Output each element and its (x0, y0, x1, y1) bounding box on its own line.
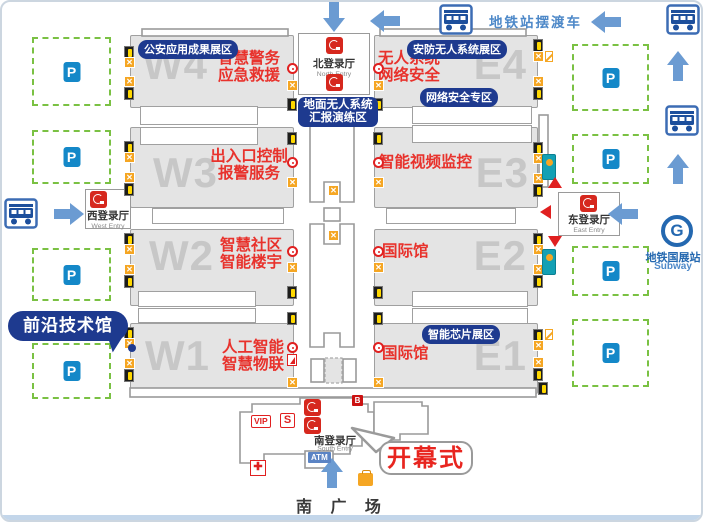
exit-icon (287, 132, 297, 145)
hall-topic-e2: 国际馆 (382, 244, 429, 261)
escalator-icon (304, 399, 321, 416)
north-entry-label: 北登录厅 (299, 58, 369, 70)
stairs-icon (287, 377, 298, 388)
stairs-icon (328, 230, 339, 241)
subway-shuttle-label: 地铁站摆渡车 (489, 11, 582, 31)
exit-icon (373, 132, 383, 145)
registration-icon (326, 37, 343, 54)
exit-icon (538, 382, 548, 395)
expo-floor-map: W4 W3 W2 W1 E4 E3 E2 E1 智慧警务应急救援 出入口控制报警… (0, 0, 703, 522)
info-icon (373, 246, 384, 257)
exit-icon (124, 183, 134, 196)
hall-topic-e3: 智能视频监控 (379, 155, 472, 172)
info-icon (373, 342, 384, 353)
stairs-icon (124, 76, 135, 87)
exit-icon (533, 368, 543, 381)
atm-icon: ATM (308, 452, 331, 463)
exit-icon (373, 312, 383, 325)
zone-badge-e4b: 网络安全专区 (420, 88, 498, 107)
service-desk-icon: S (280, 413, 295, 428)
exit-icon (533, 184, 543, 197)
stairs-icon (124, 244, 135, 255)
slash-icon (545, 329, 553, 340)
connector (412, 106, 532, 124)
stairs-icon (287, 177, 298, 188)
vip-room-icon: VIP (251, 415, 271, 428)
subway-station-label-en: Subway (638, 261, 703, 272)
shuttle-bus-icon (439, 4, 473, 40)
connector (152, 208, 284, 224)
west-entry-label-en: West Entry (89, 223, 126, 230)
connector (140, 127, 258, 145)
registration-icon (580, 195, 597, 212)
service-icon (542, 249, 556, 275)
exit-icon (373, 286, 383, 299)
registration-icon (326, 74, 343, 91)
zone-badge-e1: 智能芯片展区 (422, 325, 500, 344)
luggage-deposit-icon (358, 473, 373, 486)
stairs-icon (533, 357, 544, 368)
exit-icon (287, 286, 297, 299)
frontier-tech-hall-callout: 前沿技术馆 (8, 311, 128, 341)
hall-topic-w1: 人工智能智慧物联 (213, 340, 293, 373)
direction-arrow-left (591, 11, 621, 33)
exit-icon (124, 275, 134, 288)
connector (140, 106, 258, 125)
connector (138, 308, 256, 323)
east-entry-label-en: East Entry (564, 227, 615, 234)
stairs-icon (373, 262, 384, 273)
stairs-icon (533, 340, 544, 351)
stairs-icon (373, 177, 384, 188)
entry-pointer-down (548, 236, 562, 247)
registration-icon (90, 191, 107, 208)
info-icon (373, 157, 384, 168)
exit-icon (533, 275, 543, 288)
stairs-icon (373, 80, 384, 91)
exit-icon (287, 98, 297, 111)
connector (138, 291, 256, 307)
slash-icon (545, 51, 553, 62)
direction-arrow-right (54, 203, 84, 225)
stairs-icon (124, 358, 135, 369)
info-icon (373, 63, 384, 74)
stairs-icon (287, 80, 298, 91)
direction-arrow-left (608, 203, 638, 225)
exit-icon (124, 369, 134, 382)
exit-icon (533, 87, 543, 100)
entry-pointer-left (540, 205, 551, 219)
info-icon (287, 246, 298, 257)
exit-icon (124, 87, 134, 100)
zone-badge-north: 地面无人系统汇报演练区 (298, 97, 378, 127)
opening-ceremony-callout: 开幕式 (379, 441, 473, 475)
shuttle-bus-icon (666, 4, 700, 40)
connector (412, 291, 528, 307)
stairs-icon (124, 57, 135, 68)
redfig-icon (287, 354, 297, 366)
shuttle-bus-icon (665, 105, 699, 141)
stairs-icon (373, 377, 384, 388)
direction-arrow-down (323, 2, 345, 32)
info-icon (287, 63, 298, 74)
entry-pointer-up (548, 177, 562, 188)
connector (386, 208, 516, 224)
hall-topic-w2: 智慧社区智能楼宇 (210, 238, 292, 271)
zone-badge-e4: 安防无人系统展区 (407, 40, 507, 59)
hall-topic-w3: 出入口控制报警服务 (202, 149, 296, 182)
stairs-icon (124, 152, 135, 163)
registration-icon (304, 417, 321, 434)
frontier-callout-dot (128, 344, 136, 352)
exit-icon (287, 312, 297, 325)
info-icon (287, 342, 298, 353)
stairs-icon (287, 262, 298, 273)
first-aid-icon: ✚ (250, 460, 266, 476)
stairs-icon (533, 76, 544, 87)
connector (412, 125, 532, 143)
subway-logo-icon: G (661, 215, 693, 247)
direction-arrow-left (370, 10, 400, 32)
stairs-icon (533, 51, 544, 62)
south-plaza-label: 南 广 场 (296, 493, 388, 517)
west-entry-label: 西登录厅 (86, 210, 130, 222)
info-icon (287, 157, 298, 168)
b-point-icon: B (352, 395, 363, 406)
shuttle-bus-icon (4, 198, 38, 234)
stairs-icon (124, 264, 135, 275)
stairs-icon (124, 172, 135, 183)
connector (412, 308, 528, 324)
stairs-icon (328, 185, 339, 196)
zone-badge-w4: 公安应用成果展区 (138, 40, 238, 59)
direction-arrow-up (667, 154, 689, 184)
direction-arrow-up (667, 51, 689, 81)
hall-topic-e1: 国际馆 (382, 346, 429, 363)
